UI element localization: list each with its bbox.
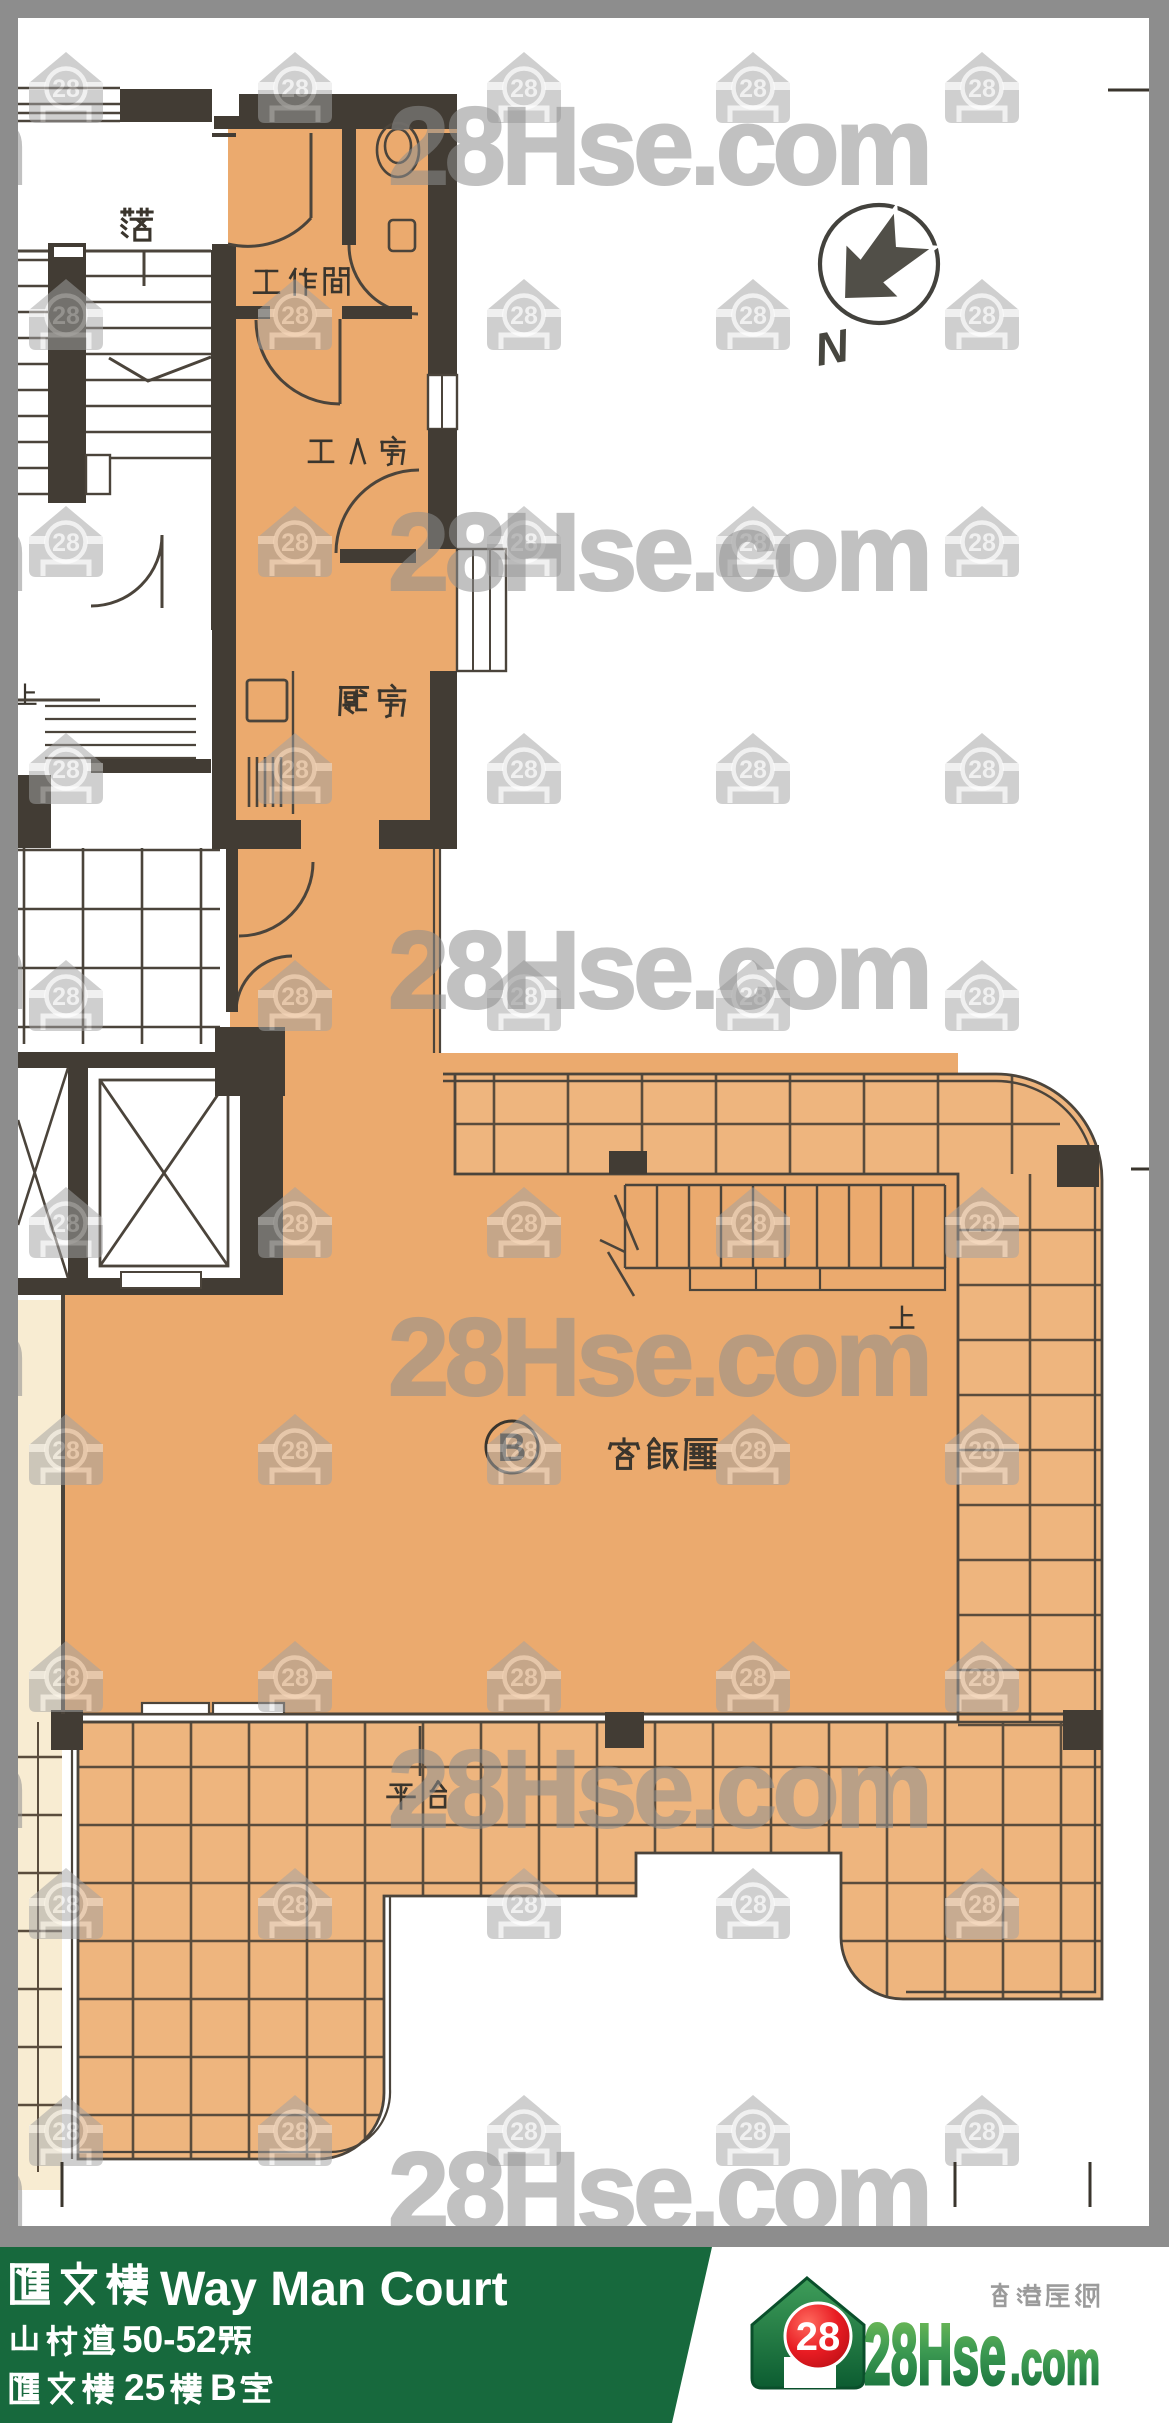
svg-text:25: 25 xyxy=(124,2367,165,2408)
svg-text:28Hse.com: 28Hse.com xyxy=(388,491,928,614)
svg-text:28Hse.com: 28Hse.com xyxy=(388,1296,928,1419)
svg-text:B: B xyxy=(210,2367,237,2408)
svg-text:28Hse.com: 28Hse.com xyxy=(388,909,928,1032)
svg-text:Way Man Court: Way Man Court xyxy=(160,2263,508,2316)
svg-text:28Hse.com: 28Hse.com xyxy=(388,1728,928,1851)
svg-text:50-52: 50-52 xyxy=(122,2319,217,2360)
svg-text:28: 28 xyxy=(796,2315,841,2359)
svg-text:.com: .com xyxy=(1010,2329,1100,2398)
svg-text:28Hse: 28Hse xyxy=(864,2307,1006,2403)
svg-text:28Hse.com: 28Hse.com xyxy=(388,85,928,208)
